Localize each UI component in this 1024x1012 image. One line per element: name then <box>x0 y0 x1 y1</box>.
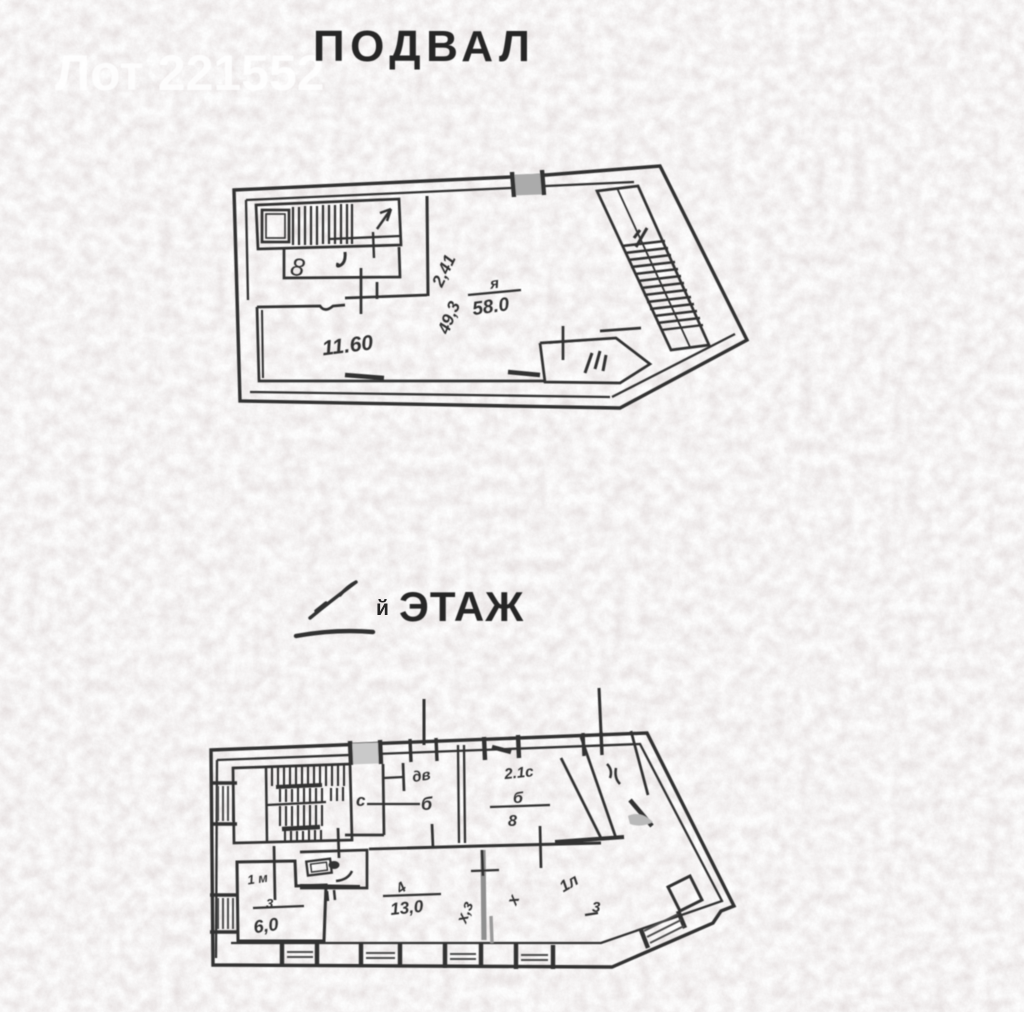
svg-text:1л: 1л <box>557 872 582 896</box>
svg-text:1 м: 1 м <box>246 870 269 888</box>
svg-text:6,0: 6,0 <box>252 914 280 937</box>
svg-text:дв: дв <box>411 766 432 786</box>
svg-text:2.1с: 2.1с <box>502 763 534 783</box>
svg-text:я: я <box>488 275 500 293</box>
svg-text:х: х <box>504 891 524 908</box>
svg-text:11.60: 11.60 <box>321 331 375 360</box>
svg-text:3: 3 <box>592 899 601 916</box>
svg-text:8: 8 <box>508 813 517 830</box>
svg-text:13,0: 13,0 <box>389 897 424 919</box>
svg-text:3: 3 <box>266 896 274 911</box>
svg-text:б: б <box>513 790 524 807</box>
svg-text:58.0: 58.0 <box>471 294 511 320</box>
svg-text:2,41: 2,41 <box>428 252 460 291</box>
svg-text:49,3: 49,3 <box>434 298 465 337</box>
svg-text:с: с <box>356 791 366 810</box>
svg-text:б: б <box>421 794 433 814</box>
svg-text:х,з: х,з <box>453 899 477 926</box>
